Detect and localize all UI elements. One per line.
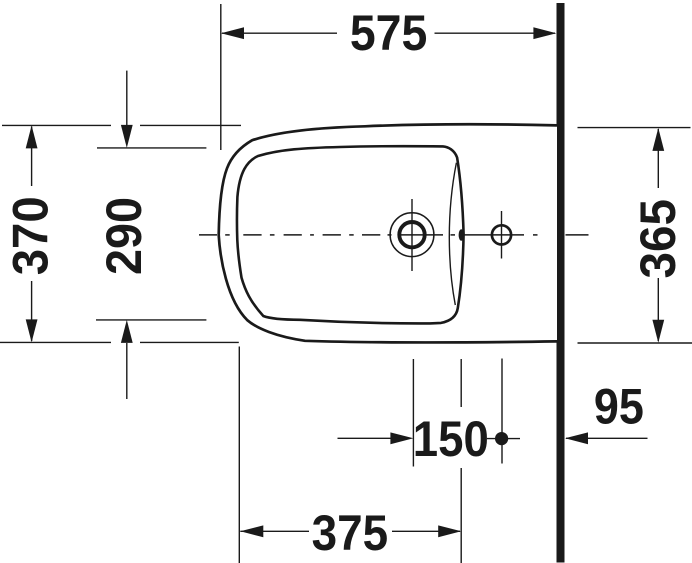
svg-text:370: 370 xyxy=(2,196,59,275)
svg-text:365: 365 xyxy=(629,199,686,278)
svg-text:95: 95 xyxy=(594,378,644,435)
svg-text:375: 375 xyxy=(312,504,389,561)
svg-text:150: 150 xyxy=(413,410,489,467)
svg-text:290: 290 xyxy=(95,197,152,275)
svg-text:575: 575 xyxy=(350,4,428,61)
